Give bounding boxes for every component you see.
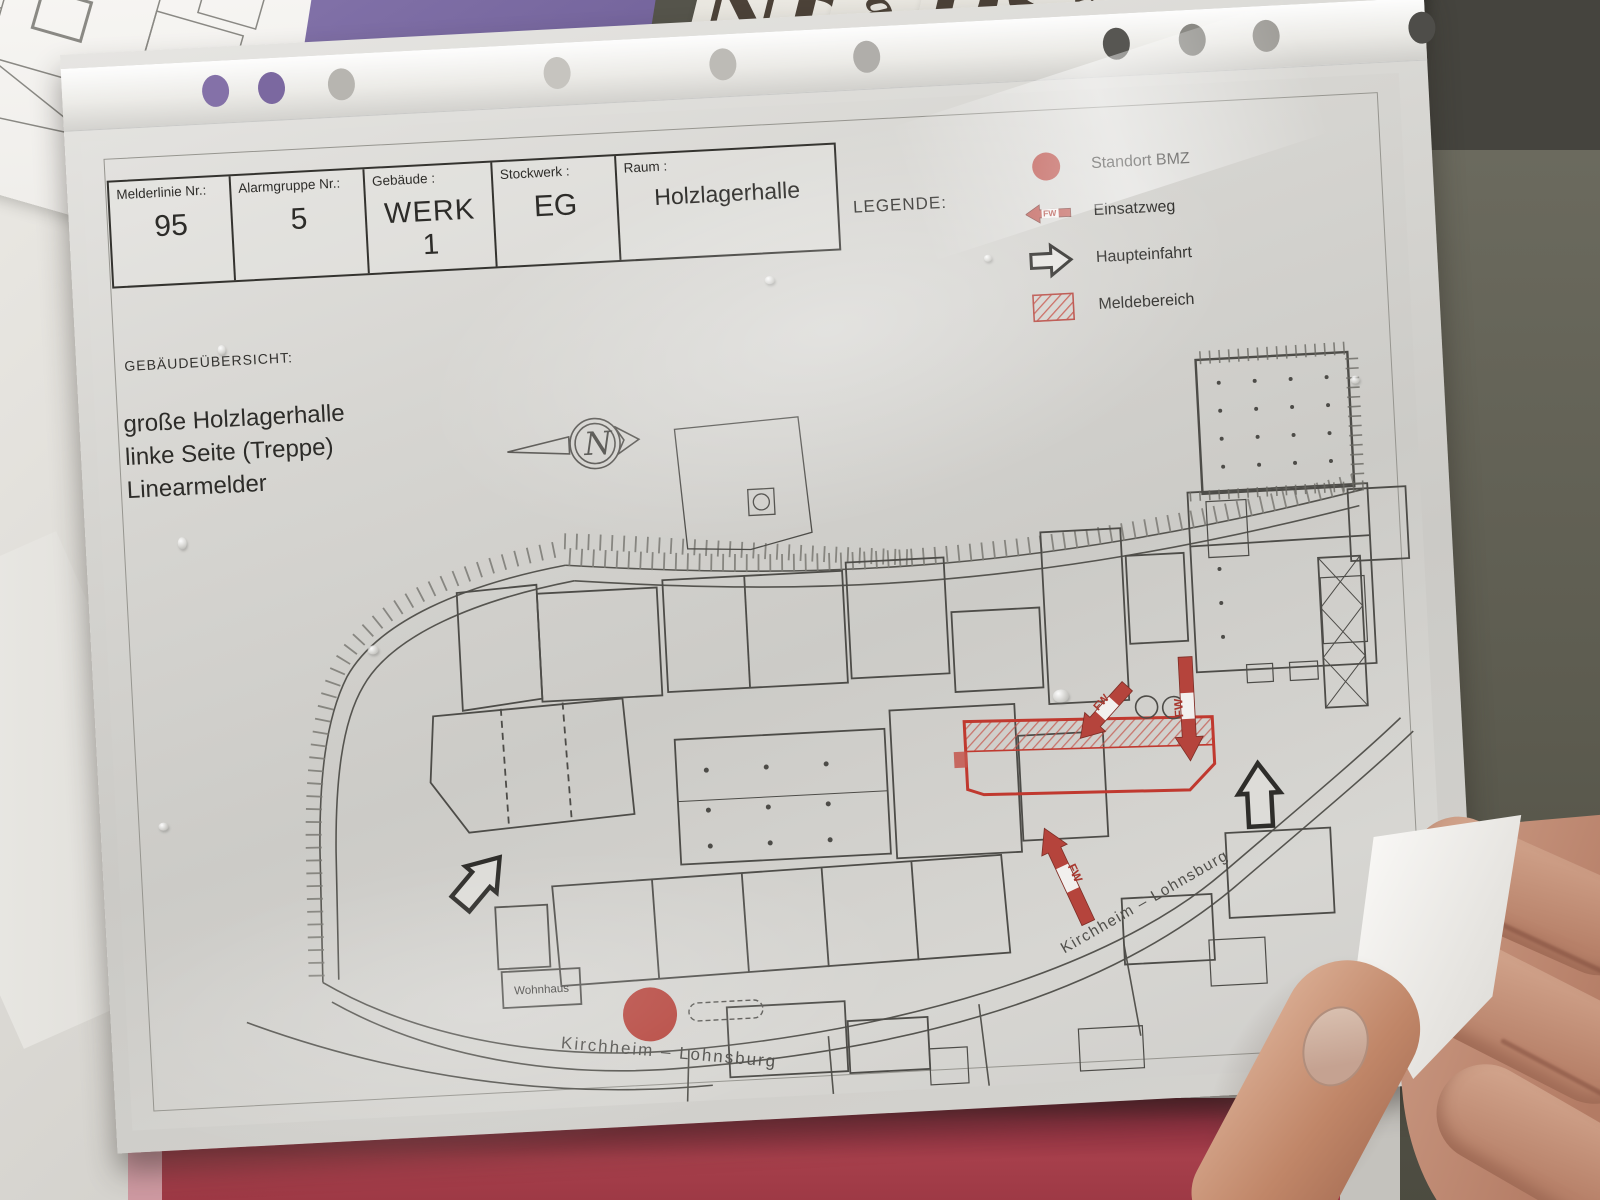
punch-hole <box>201 74 230 107</box>
bmz-location-marker <box>622 986 679 1043</box>
punch-hole <box>852 40 881 73</box>
building-hatch-edges <box>1182 347 1365 496</box>
photo-of-fire-route-card: ND mati DS ation EL C n <box>0 0 1600 1200</box>
road-label-bottom: Kirchheim – Lohnsburg <box>560 1033 778 1071</box>
compass-n-label: N <box>582 424 614 464</box>
punch-hole <box>543 56 572 89</box>
site-plan-map: FW FW <box>81 73 1451 1131</box>
punch-hole <box>1178 23 1207 56</box>
thumbnail <box>1291 997 1379 1096</box>
route-card-page: Melderlinie Nr.: 95 Alarmgruppe Nr.: 5 G… <box>81 73 1451 1131</box>
parking-ticks <box>294 482 1382 979</box>
bmz-adjacent-structure <box>688 1000 763 1022</box>
punch-hole <box>1252 19 1281 52</box>
punch-hole <box>709 48 738 81</box>
punch-hole <box>1102 27 1131 60</box>
meldebereich-notch <box>954 752 968 769</box>
punch-hole <box>327 68 356 101</box>
north-compass: N <box>506 416 640 473</box>
wohnhaus-label: Wohnhaus <box>514 983 570 998</box>
punch-hole <box>257 71 286 104</box>
main-entrance-arrow-east <box>1237 762 1282 827</box>
tank-circle <box>1135 695 1158 718</box>
